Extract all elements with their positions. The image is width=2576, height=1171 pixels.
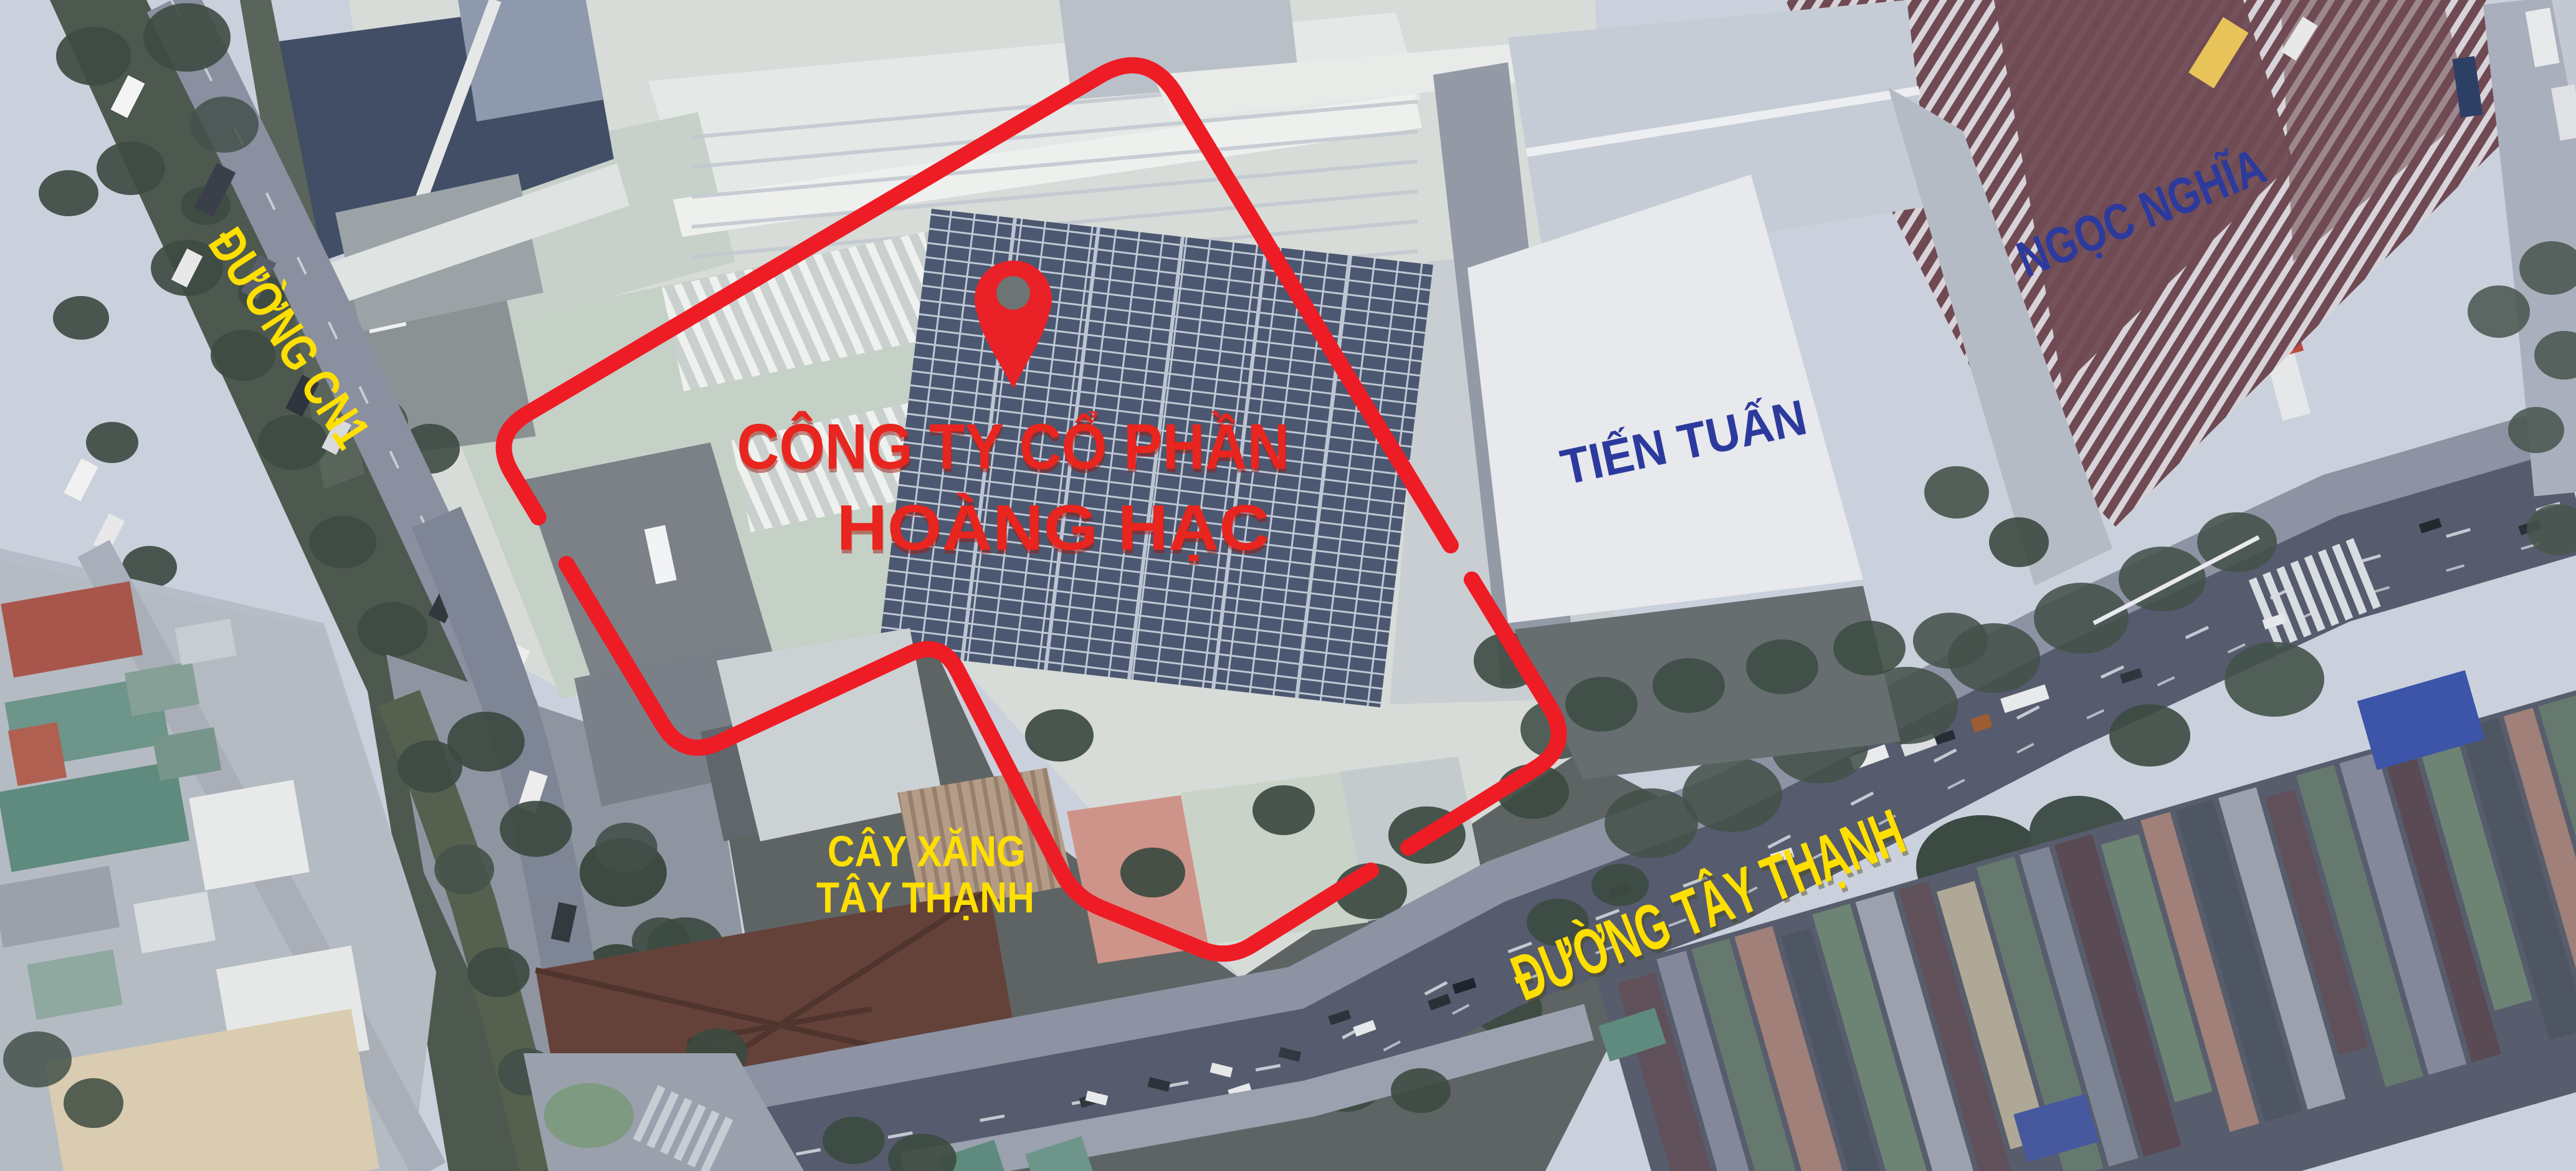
svg-text:TÂY THẠNH: TÂY THẠNH bbox=[816, 872, 1034, 922]
svg-text:CÂY XĂNG: CÂY XĂNG bbox=[828, 826, 1026, 876]
svg-text:HOÀNG HẠC: HOÀNG HẠC bbox=[837, 492, 1270, 563]
svg-text:CÔNG TY CỔ PHẦN: CÔNG TY CỔ PHẦN bbox=[737, 410, 1290, 482]
